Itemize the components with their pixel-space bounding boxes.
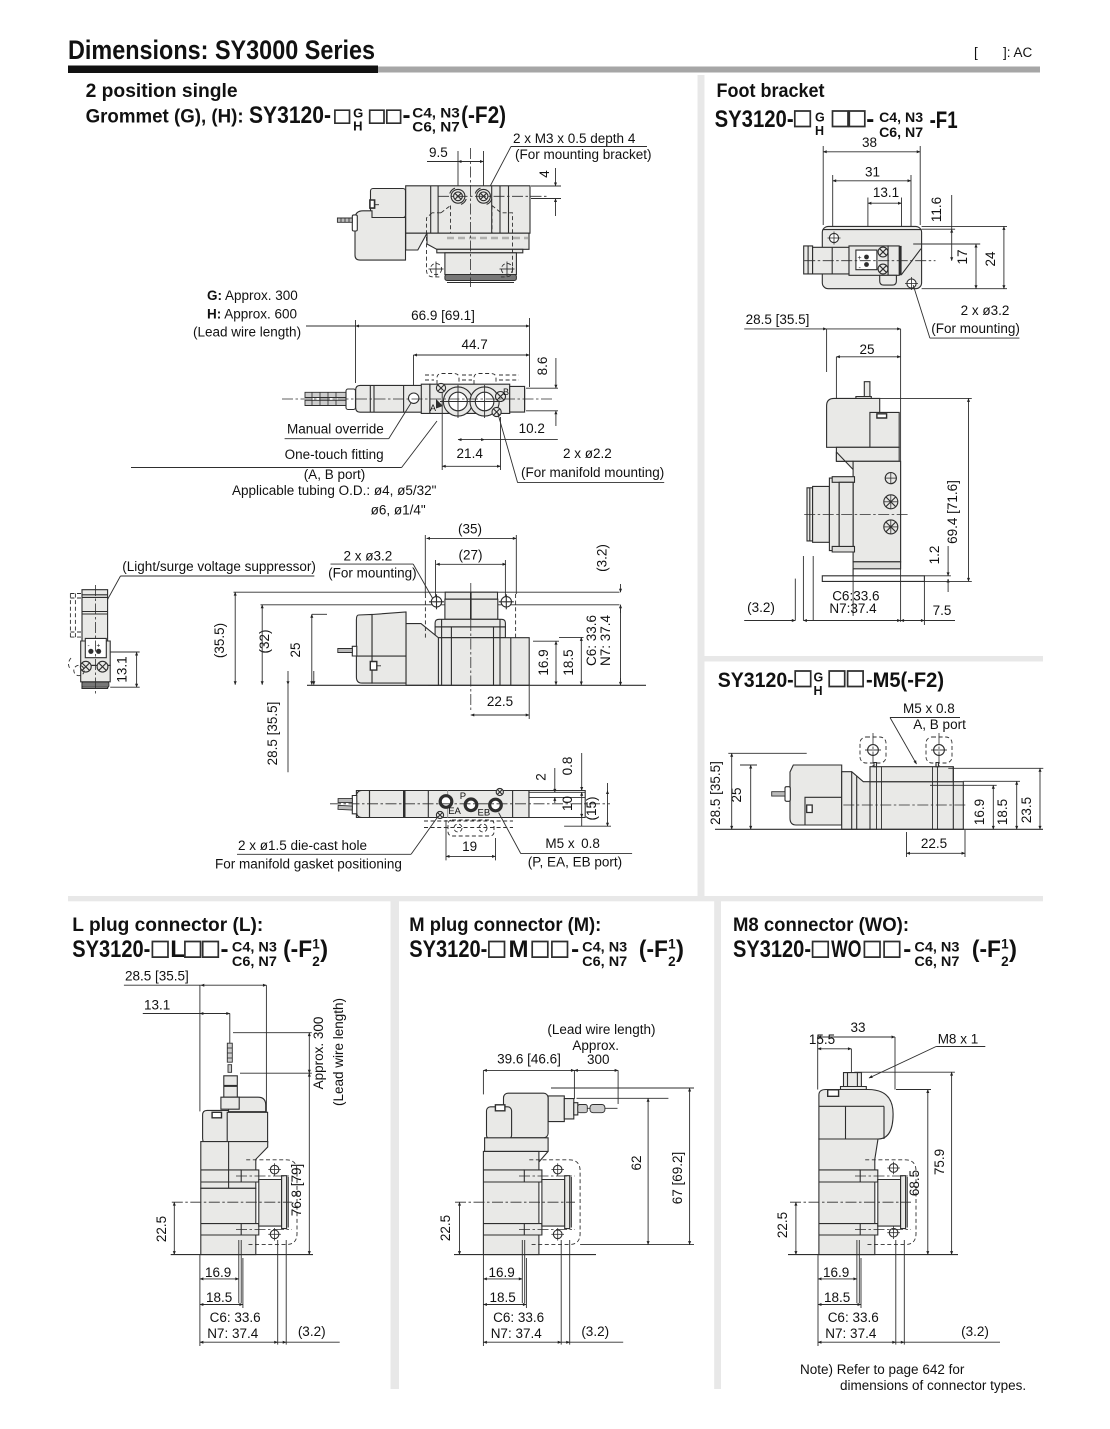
svg-text:16.9: 16.9 (972, 799, 987, 825)
svg-text:13.1: 13.1 (873, 185, 899, 200)
svg-text:75.9: 75.9 (932, 1149, 947, 1175)
svg-text:C6, N7: C6, N7 (232, 954, 277, 969)
svg-text:SY3120-: SY3120- (409, 936, 487, 963)
svg-text:Manual override: Manual override (287, 421, 384, 436)
svg-text:C4, N3: C4, N3 (914, 940, 960, 955)
svg-text:13.1: 13.1 (144, 998, 170, 1013)
svg-text:8.6: 8.6 (535, 357, 550, 376)
svg-text:(3.2): (3.2) (961, 1324, 989, 1339)
svg-text:2 x ø2.2: 2 x ø2.2 (563, 446, 612, 461)
svg-text:N7: 37.4: N7: 37.4 (598, 614, 613, 666)
svg-text:G: Approx. 300: G: Approx. 300 (207, 288, 298, 303)
svg-text:SY3120-: SY3120- (249, 102, 331, 129)
svg-text:C6: 33.6: C6: 33.6 (584, 615, 599, 666)
svg-text:M plug connector (M):: M plug connector (M): (409, 914, 601, 936)
svg-text:10.2: 10.2 (519, 421, 545, 436)
svg-text:2: 2 (1001, 954, 1009, 969)
svg-text:(For manifold mounting): (For manifold mounting) (521, 465, 664, 480)
svg-text:Applicable tubing O.D.: ø4, ø5: Applicable tubing O.D.: ø4, ø5/32" (232, 483, 437, 498)
svg-text:0.8: 0.8 (560, 757, 575, 776)
svg-text:2 x ø3.2: 2 x ø3.2 (961, 303, 1010, 318)
svg-text:28.5 [35.5]: 28.5 [35.5] (265, 702, 280, 766)
svg-text:4: 4 (537, 170, 552, 178)
svg-text:2 x ø1.5 die-cast hole: 2 x ø1.5 die-cast hole (238, 838, 367, 853)
svg-text:22.5: 22.5 (487, 694, 513, 709)
svg-text:C4, N3: C4, N3 (232, 940, 278, 955)
svg-text:2 x ø3.2: 2 x ø3.2 (344, 549, 393, 564)
svg-text:-M5(-F2): -M5(-F2) (866, 669, 944, 692)
svg-text:C6, N7: C6, N7 (412, 119, 460, 134)
svg-text:(35.5): (35.5) (212, 623, 227, 658)
svg-text:10: 10 (560, 796, 575, 811)
svg-text:H: H (353, 118, 362, 133)
svg-text:SY3120-: SY3120- (72, 936, 150, 963)
svg-text:WO: WO (831, 936, 861, 963)
svg-text:M8 connector (WO):: M8 connector (WO): (733, 914, 909, 936)
svg-text:2 position single: 2 position single (86, 80, 238, 102)
svg-text:G: G (815, 111, 825, 125)
svg-text:(-F: (-F (972, 936, 1001, 963)
svg-text:18.5: 18.5 (490, 1290, 516, 1305)
svg-text:28.5 [35.5]: 28.5 [35.5] (708, 761, 723, 825)
svg-text:N7:37.4: N7:37.4 (829, 601, 877, 616)
svg-text:18.5: 18.5 (824, 1290, 850, 1305)
svg-text:(For mounting): (For mounting) (931, 321, 1020, 336)
svg-text:A: A (430, 403, 436, 413)
svg-text:dimensions of connector types.: dimensions of connector types. (840, 1378, 1026, 1393)
svg-text:(Lead wire length): (Lead wire length) (193, 325, 301, 340)
svg-text:-: - (866, 106, 874, 133)
svg-text:(-F2): (-F2) (461, 102, 506, 129)
svg-text:23.5: 23.5 (1019, 797, 1034, 823)
svg-text:15.5: 15.5 (809, 1032, 835, 1047)
svg-text:16.9: 16.9 (823, 1265, 849, 1280)
svg-text:66.9 [69.1]: 66.9 [69.1] (411, 308, 475, 323)
svg-text:): ) (320, 936, 328, 963)
svg-text:C6, N7: C6, N7 (879, 125, 923, 140)
svg-text:C4, N3: C4, N3 (582, 940, 628, 955)
svg-text:-: - (571, 936, 579, 963)
svg-text:Approx.: Approx. (572, 1038, 619, 1053)
svg-text:N7: 37.4: N7: 37.4 (825, 1326, 877, 1341)
svg-text:16.9: 16.9 (489, 1265, 515, 1280)
svg-text:24: 24 (983, 251, 998, 267)
svg-text:]: AC: ]: AC (1003, 45, 1033, 60)
svg-text:[: [ (974, 45, 978, 60)
svg-text:): ) (676, 936, 684, 963)
svg-text:N7: 37.4: N7: 37.4 (491, 1326, 543, 1341)
svg-text:C6: 33.6: C6: 33.6 (828, 1310, 879, 1325)
svg-text:17: 17 (955, 249, 970, 264)
svg-text:(P, EA, EB port): (P, EA, EB port) (528, 855, 622, 870)
svg-text:1: 1 (1001, 937, 1009, 952)
svg-text:(3.2): (3.2) (595, 544, 610, 572)
svg-text:L plug connector (L):: L plug connector (L): (72, 914, 263, 936)
svg-text:(Lead wire length): (Lead wire length) (331, 998, 346, 1106)
svg-text:18.5: 18.5 (561, 649, 576, 675)
svg-text:19: 19 (462, 839, 477, 854)
svg-text:22.5: 22.5 (438, 1215, 453, 1241)
svg-text:-: - (903, 936, 911, 963)
svg-text:(-F: (-F (639, 936, 668, 963)
svg-text:69.4 [71.6]: 69.4 [71.6] (945, 480, 960, 544)
svg-text:2 x M3 x 0.5 depth 4: 2 x M3 x 0.5 depth 4 (513, 131, 636, 146)
svg-text:H: H (815, 124, 824, 138)
svg-text:-: - (403, 102, 411, 129)
svg-text:31: 31 (865, 165, 880, 180)
svg-text:(35): (35) (458, 522, 482, 537)
svg-text:H: H (814, 684, 823, 698)
svg-text:16.9: 16.9 (536, 649, 551, 675)
svg-text:G: G (814, 671, 824, 685)
svg-text:-F1: -F1 (930, 107, 958, 134)
svg-text:11.6: 11.6 (929, 197, 944, 222)
svg-text:33: 33 (850, 1020, 865, 1035)
svg-text:EA: EA (448, 806, 461, 817)
svg-text:EB: EB (478, 808, 491, 819)
svg-text:(15): (15) (584, 796, 599, 820)
svg-text:22.5: 22.5 (154, 1216, 169, 1242)
svg-text:13.1: 13.1 (115, 656, 130, 682)
svg-text:(Light/surge voltage suppresso: (Light/surge voltage suppressor) (122, 559, 316, 574)
svg-text:SY3120-: SY3120- (715, 106, 794, 133)
svg-text:-: - (88, 643, 90, 650)
svg-text:(Lead wire length): (Lead wire length) (547, 1022, 655, 1037)
svg-text:62: 62 (629, 1155, 644, 1170)
svg-text:7.5: 7.5 (933, 603, 952, 618)
svg-text:P: P (460, 791, 466, 802)
svg-text:39.6 [46.6]: 39.6 [46.6] (497, 1052, 561, 1067)
svg-text:C6: 33.6: C6: 33.6 (493, 1310, 544, 1325)
svg-text:9.5: 9.5 (429, 145, 448, 160)
svg-text:(A, B port): (A, B port) (304, 467, 366, 482)
svg-text:Approx. 300: Approx. 300 (311, 1017, 326, 1090)
svg-text:44.7: 44.7 (461, 337, 487, 352)
svg-text:L: L (170, 936, 185, 963)
svg-text:C6: 33.6: C6: 33.6 (210, 1310, 261, 1325)
svg-text:1: 1 (668, 937, 676, 952)
svg-text:(For mounting bracket): (For mounting bracket) (515, 147, 652, 162)
svg-text:2: 2 (312, 954, 320, 969)
svg-text:For manifold gasket positionin: For manifold gasket positioning (215, 857, 402, 872)
svg-text:(For mounting): (For mounting) (328, 566, 417, 581)
svg-text:16.9: 16.9 (205, 1265, 231, 1280)
svg-text:Dimensions: SY3000 Series: Dimensions: SY3000 Series (68, 35, 375, 65)
svg-text:28.5 [35.5]: 28.5 [35.5] (125, 969, 189, 984)
svg-text:): ) (1009, 936, 1017, 963)
svg-text:H: Approx. 600: H: Approx. 600 (207, 307, 297, 322)
svg-text:N7: 37.4: N7: 37.4 (207, 1326, 259, 1341)
svg-text:(32): (32) (257, 629, 272, 653)
svg-text:Foot bracket: Foot bracket (717, 80, 825, 102)
svg-text:1.2: 1.2 (927, 546, 942, 565)
svg-text:Grommet (G), (H):: Grommet (G), (H): (86, 106, 244, 128)
svg-text:2: 2 (534, 773, 549, 781)
svg-text:38: 38 (862, 135, 877, 150)
svg-text:C6, N7: C6, N7 (582, 954, 627, 969)
svg-text:SY3120-: SY3120- (718, 669, 794, 692)
svg-text:25: 25 (859, 342, 874, 357)
svg-text:300: 300 (587, 1052, 610, 1067)
svg-text:(3.2): (3.2) (298, 1324, 326, 1339)
svg-text:M5 x 0.8: M5 x 0.8 (545, 836, 599, 851)
svg-text:25: 25 (729, 787, 744, 802)
svg-text:(3.2): (3.2) (581, 1324, 609, 1339)
svg-text:68.5: 68.5 (907, 1170, 922, 1196)
svg-text:M5 x 0.8: M5 x 0.8 (903, 701, 955, 716)
svg-text:B: B (503, 387, 509, 397)
svg-text:21.4: 21.4 (457, 446, 484, 461)
svg-text:67 [69.2]: 67 [69.2] (670, 1152, 685, 1205)
svg-text:Note) Refer to page 642 for: Note) Refer to page 642 for (800, 1362, 965, 1377)
svg-text:M: M (509, 936, 529, 963)
svg-text:1: 1 (312, 937, 320, 952)
svg-text:18.5: 18.5 (206, 1290, 232, 1305)
svg-text:M8 x 1: M8 x 1 (938, 1032, 979, 1047)
svg-text:(-F: (-F (283, 936, 312, 963)
svg-text:ø6, ø1/4": ø6, ø1/4" (371, 503, 426, 518)
svg-text:-: - (221, 936, 229, 963)
svg-text:C6, N7: C6, N7 (914, 954, 959, 969)
svg-text:One-touch fitting: One-touch fitting (285, 447, 384, 462)
svg-text:A, B port: A, B port (913, 717, 966, 732)
svg-text:C4, N3: C4, N3 (412, 105, 460, 120)
svg-text:76.8 [79]: 76.8 [79] (289, 1164, 304, 1217)
svg-text:(3.2): (3.2) (747, 600, 775, 615)
svg-text:25: 25 (288, 642, 303, 657)
svg-text:28.5 [35.5]: 28.5 [35.5] (746, 312, 810, 327)
svg-text:SY3120-: SY3120- (733, 936, 811, 963)
svg-text:22.5: 22.5 (921, 836, 947, 851)
svg-text:2: 2 (668, 954, 676, 969)
svg-text:C4, N3: C4, N3 (879, 110, 923, 125)
svg-text:+: + (97, 643, 101, 650)
svg-text:(27): (27) (458, 548, 482, 563)
svg-text:22.5: 22.5 (775, 1212, 790, 1238)
svg-text:18.5: 18.5 (995, 799, 1010, 825)
